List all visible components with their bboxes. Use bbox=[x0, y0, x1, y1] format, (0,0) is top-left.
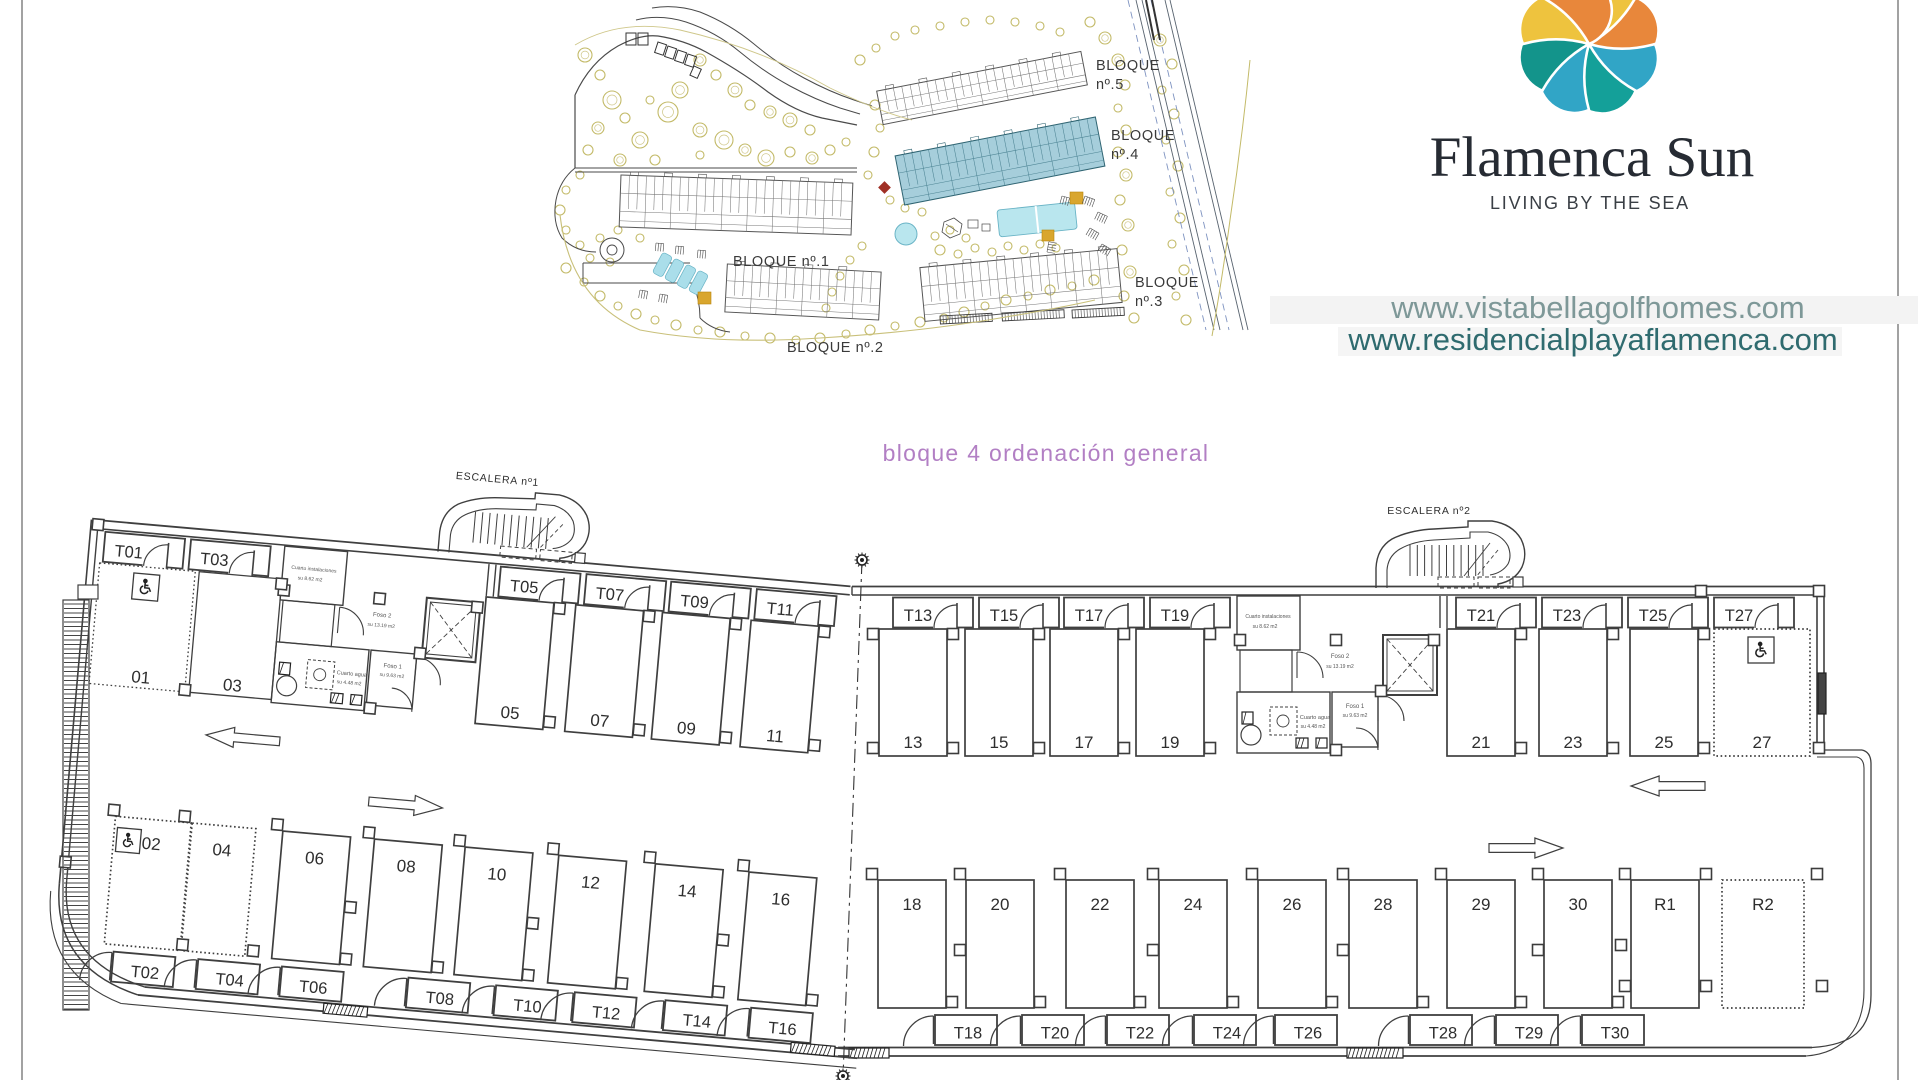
svg-text:T23: T23 bbox=[1553, 607, 1581, 625]
svg-text:T04: T04 bbox=[215, 970, 245, 990]
svg-text:T13: T13 bbox=[904, 607, 932, 625]
svg-text:BLOQUE: BLOQUE bbox=[1135, 275, 1199, 291]
svg-text:R2: R2 bbox=[1752, 895, 1774, 914]
svg-text:02: 02 bbox=[141, 834, 162, 855]
svg-text:Foso 2: Foso 2 bbox=[1331, 654, 1350, 660]
svg-text:T26: T26 bbox=[1294, 1025, 1322, 1043]
svg-text:LIVING BY THE SEA: LIVING BY THE SEA bbox=[1490, 193, 1690, 213]
svg-text:T30: T30 bbox=[1601, 1025, 1629, 1043]
svg-text:22: 22 bbox=[1091, 895, 1110, 914]
svg-text:T29: T29 bbox=[1515, 1025, 1543, 1043]
svg-text:BLOQUE nº.1: BLOQUE nº.1 bbox=[733, 254, 830, 270]
svg-text:06: 06 bbox=[304, 848, 325, 869]
svg-text:T14: T14 bbox=[682, 1011, 712, 1031]
svg-text:ESCALERA nº2: ESCALERA nº2 bbox=[1387, 505, 1470, 517]
svg-text:T03: T03 bbox=[199, 550, 229, 570]
svg-text:04: 04 bbox=[212, 840, 233, 861]
svg-text:T02: T02 bbox=[130, 963, 160, 983]
svg-text:08: 08 bbox=[396, 856, 417, 877]
svg-text:11: 11 bbox=[765, 726, 784, 746]
svg-text:BLOQUE: BLOQUE bbox=[1096, 58, 1160, 74]
svg-text:28: 28 bbox=[1374, 895, 1393, 914]
svg-text:07: 07 bbox=[589, 711, 610, 732]
svg-text:nº.5: nº.5 bbox=[1096, 77, 1124, 93]
svg-text:su 8.62 m2: su 8.62 m2 bbox=[1253, 624, 1278, 630]
svg-text:T19: T19 bbox=[1161, 607, 1189, 625]
svg-text:T08: T08 bbox=[425, 989, 455, 1009]
svg-text:12: 12 bbox=[580, 872, 601, 893]
svg-text:su 4.48 m2: su 4.48 m2 bbox=[1301, 724, 1326, 730]
svg-text:T07: T07 bbox=[595, 585, 625, 605]
svg-text:29: 29 bbox=[1472, 895, 1491, 914]
svg-text:Flamenca Sun: Flamenca Sun bbox=[1430, 126, 1755, 189]
svg-text:T01: T01 bbox=[114, 542, 144, 562]
svg-text:nº.4: nº.4 bbox=[1111, 147, 1139, 163]
svg-text:bloque 4 ordenación general: bloque 4 ordenación general bbox=[883, 440, 1210, 466]
svg-text:BLOQUE nº.2: BLOQUE nº.2 bbox=[787, 340, 884, 356]
svg-text:Cuarto instalaciones: Cuarto instalaciones bbox=[1245, 614, 1291, 620]
svg-text:27: 27 bbox=[1753, 733, 1772, 752]
svg-text:T17: T17 bbox=[1075, 607, 1103, 625]
svg-text:Cuarto agua: Cuarto agua bbox=[1300, 715, 1331, 721]
svg-text:01: 01 bbox=[131, 667, 152, 688]
svg-text:nº.3: nº.3 bbox=[1135, 294, 1163, 310]
svg-text:18: 18 bbox=[903, 895, 922, 914]
svg-text:T20: T20 bbox=[1041, 1025, 1069, 1043]
svg-text:25: 25 bbox=[1655, 733, 1674, 752]
svg-text:Foso 1: Foso 1 bbox=[1346, 704, 1365, 710]
svg-text:T06: T06 bbox=[298, 978, 328, 998]
svg-text:T25: T25 bbox=[1639, 607, 1667, 625]
svg-text:26: 26 bbox=[1283, 895, 1302, 914]
svg-text:10: 10 bbox=[487, 864, 508, 885]
svg-text:30: 30 bbox=[1569, 895, 1588, 914]
svg-text:T18: T18 bbox=[954, 1025, 982, 1043]
svg-text:21: 21 bbox=[1472, 733, 1491, 752]
svg-text:T12: T12 bbox=[591, 1003, 621, 1023]
svg-text:13: 13 bbox=[904, 733, 923, 752]
svg-text:09: 09 bbox=[676, 718, 697, 739]
svg-text:T22: T22 bbox=[1126, 1025, 1154, 1043]
svg-text:su 9.63 m2: su 9.63 m2 bbox=[1343, 713, 1368, 719]
svg-text:16: 16 bbox=[771, 889, 792, 910]
svg-text:T09: T09 bbox=[680, 592, 710, 612]
svg-text:T27: T27 bbox=[1725, 607, 1753, 625]
svg-text:T21: T21 bbox=[1467, 607, 1495, 625]
svg-text:T11: T11 bbox=[766, 600, 795, 620]
svg-text:R1: R1 bbox=[1654, 895, 1676, 914]
svg-text:T24: T24 bbox=[1213, 1025, 1241, 1043]
svg-text:14: 14 bbox=[677, 881, 698, 902]
svg-text:19: 19 bbox=[1161, 733, 1180, 752]
svg-text:15: 15 bbox=[990, 733, 1009, 752]
svg-text:T15: T15 bbox=[990, 607, 1018, 625]
svg-text:05: 05 bbox=[500, 703, 521, 724]
svg-text:BLOQUE: BLOQUE bbox=[1111, 128, 1175, 144]
svg-text:23: 23 bbox=[1564, 733, 1583, 752]
svg-text:20: 20 bbox=[991, 895, 1010, 914]
svg-text:T10: T10 bbox=[512, 996, 542, 1016]
svg-text:www.residencialplayaflamenca.c: www.residencialplayaflamenca.com bbox=[1347, 322, 1837, 357]
svg-text:su 13.19 m2: su 13.19 m2 bbox=[1326, 664, 1354, 670]
svg-text:T16: T16 bbox=[767, 1019, 797, 1039]
svg-text:17: 17 bbox=[1075, 733, 1094, 752]
svg-text:03: 03 bbox=[222, 675, 243, 696]
svg-text:24: 24 bbox=[1184, 895, 1203, 914]
svg-text:T05: T05 bbox=[509, 577, 539, 597]
svg-text:T28: T28 bbox=[1429, 1025, 1457, 1043]
svg-text:www.vistabellagolfhomes.com: www.vistabellagolfhomes.com bbox=[1390, 290, 1805, 325]
